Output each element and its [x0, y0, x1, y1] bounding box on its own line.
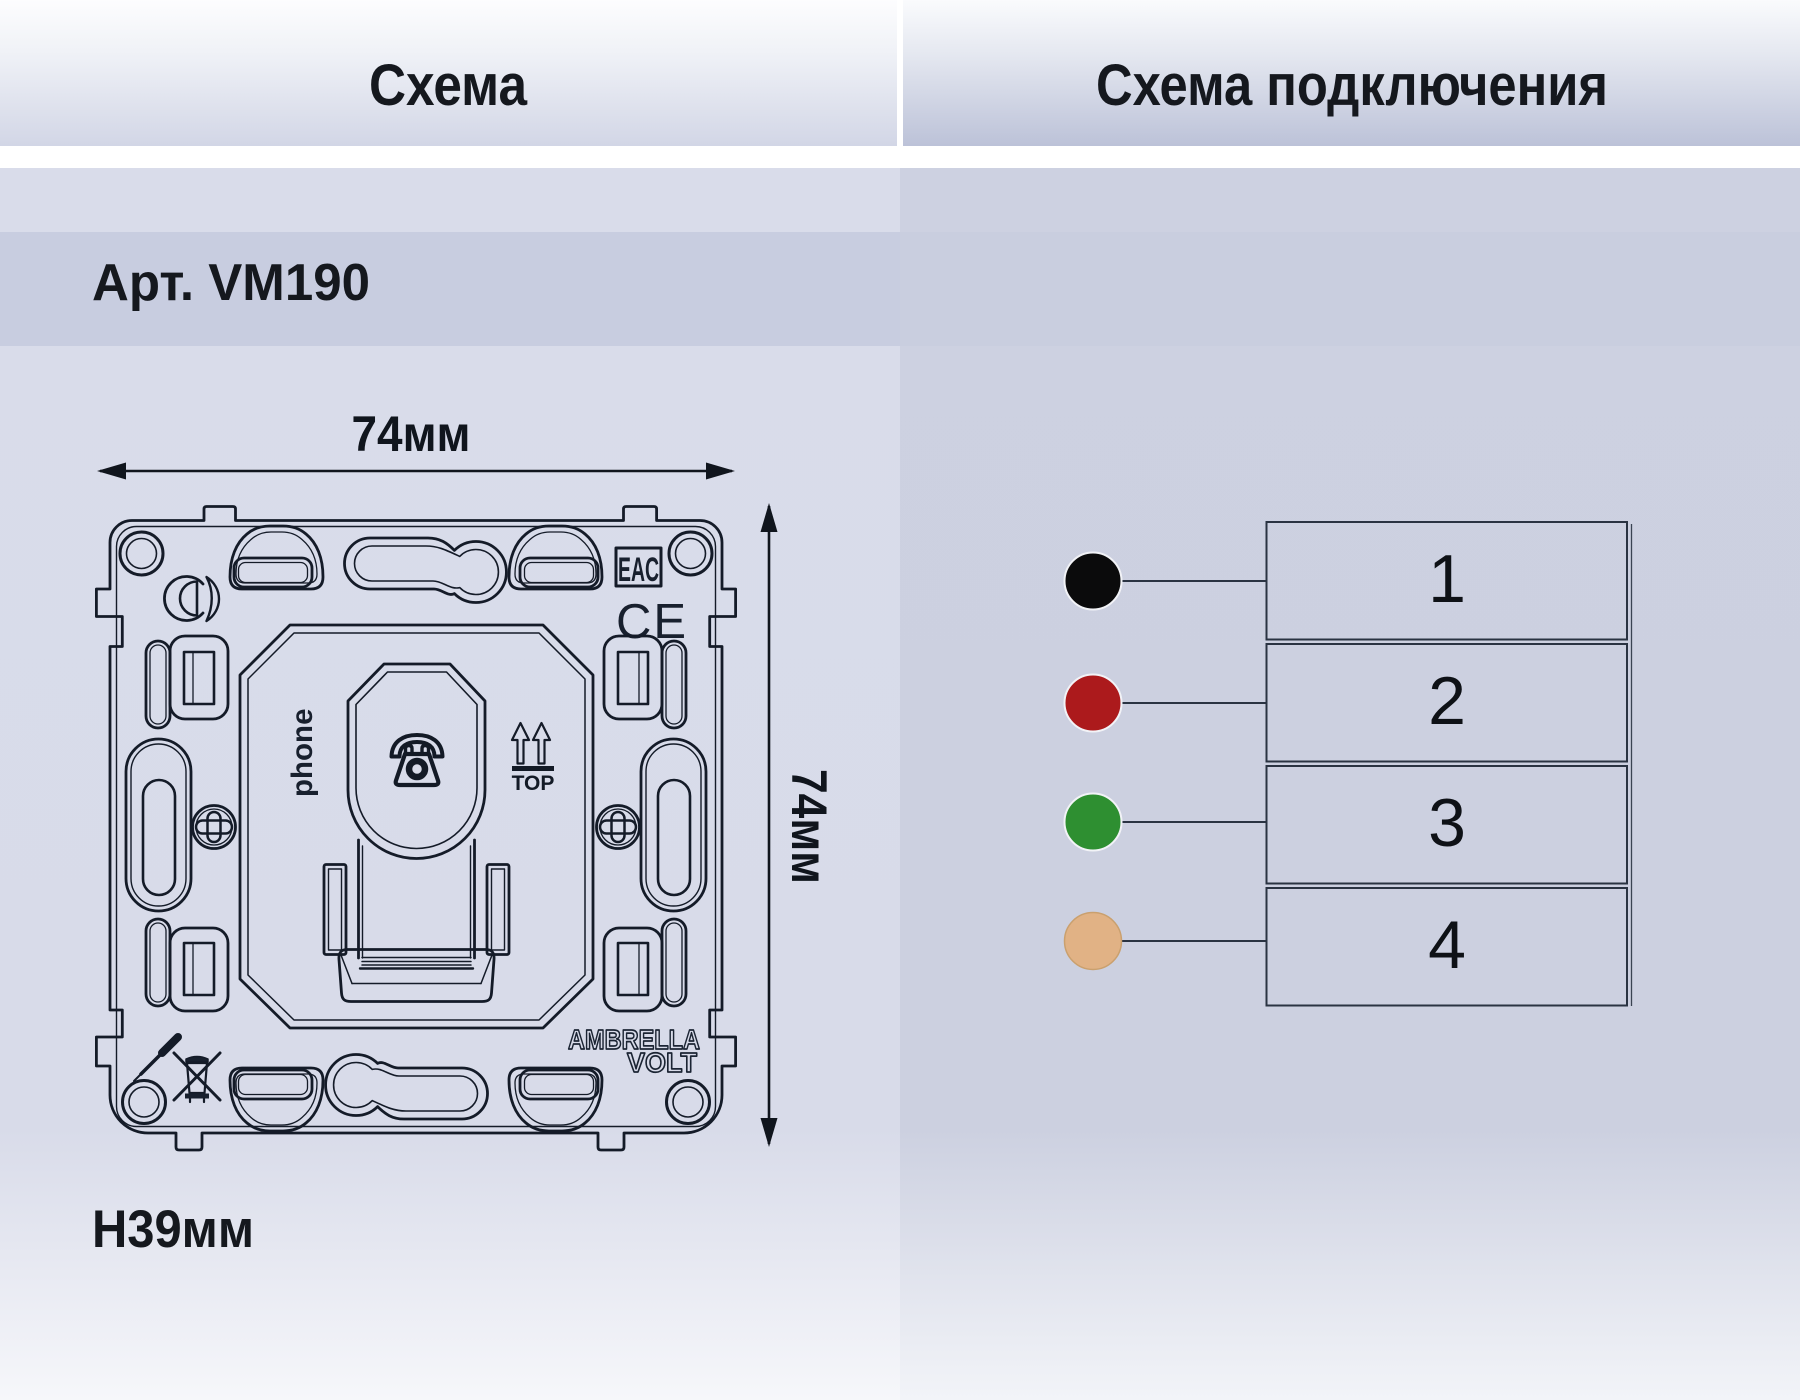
svg-text:phone: phone — [286, 709, 319, 798]
svg-text:TOP: TOP — [512, 772, 555, 795]
svg-text:2: 2 — [1428, 663, 1466, 739]
svg-text:Арт. VM190: Арт. VM190 — [92, 254, 370, 312]
svg-text:VOLT: VOLT — [627, 1047, 697, 1078]
svg-text:Схема подключения: Схема подключения — [1096, 53, 1608, 118]
svg-text:74мм: 74мм — [781, 769, 837, 884]
svg-text:74мм: 74мм — [352, 406, 471, 462]
svg-text:Схема: Схема — [369, 53, 528, 118]
svg-text:4: 4 — [1428, 907, 1466, 983]
svg-text:H39мм: H39мм — [92, 1200, 254, 1259]
svg-text:EAC: EAC — [618, 551, 659, 589]
svg-text:1: 1 — [1428, 541, 1466, 617]
svg-text:3: 3 — [1428, 785, 1466, 861]
